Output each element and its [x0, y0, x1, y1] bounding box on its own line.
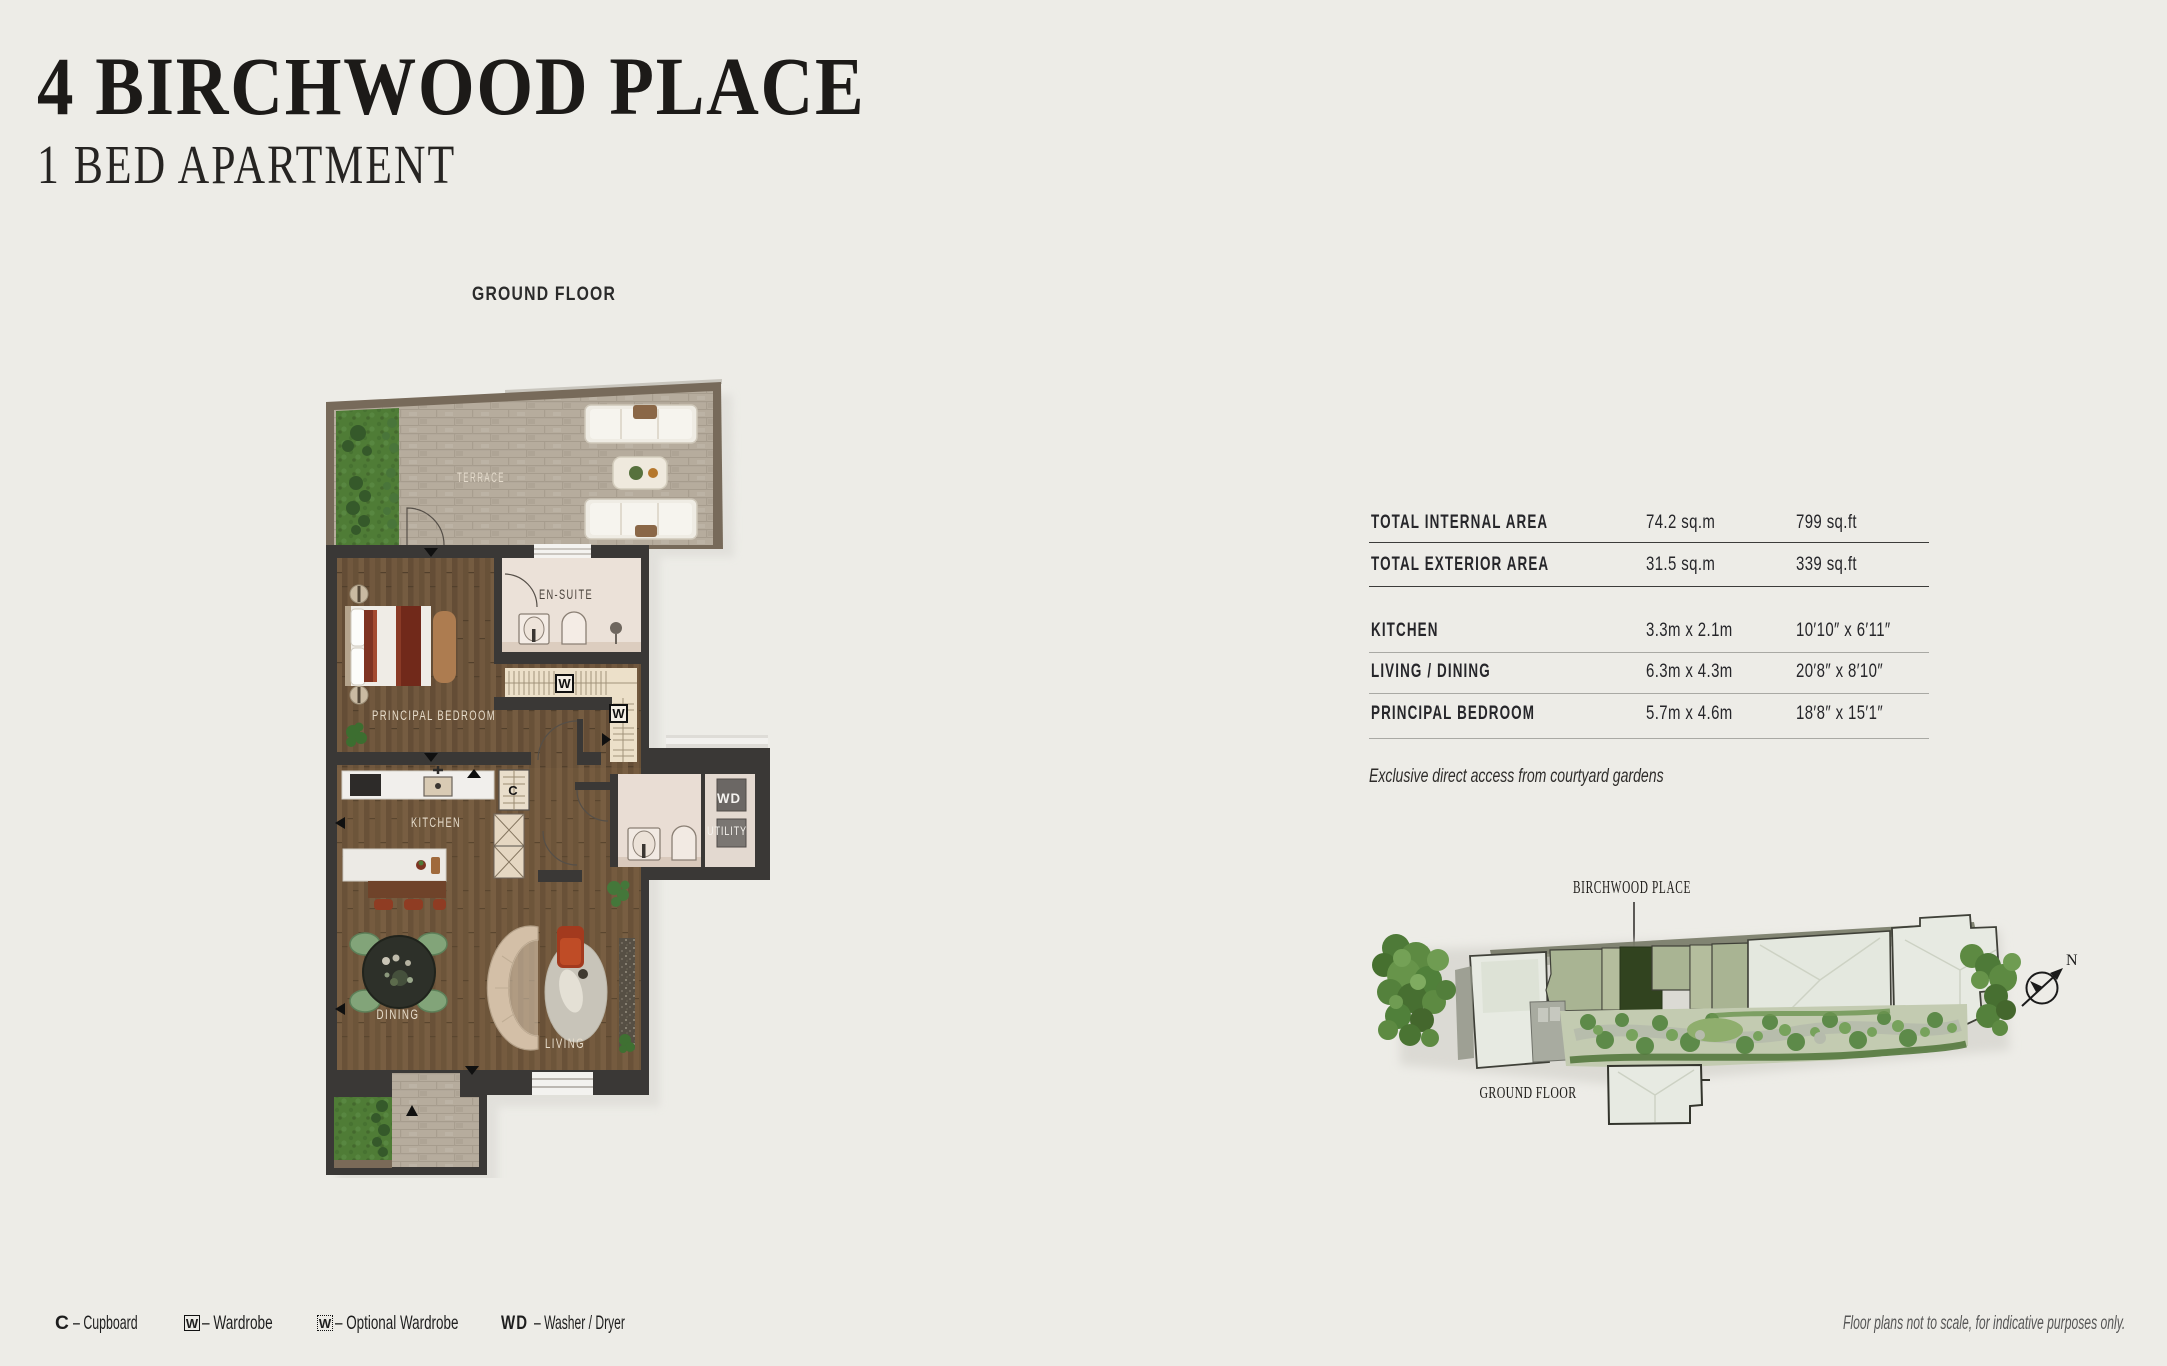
svg-text:DINING: DINING — [377, 1007, 420, 1022]
svg-text:KITCHEN: KITCHEN — [411, 815, 461, 830]
svg-text:C: C — [508, 783, 518, 798]
svg-text:GROUND FLOOR: GROUND FLOOR — [1480, 1083, 1577, 1102]
svg-text:BIRCHWOOD PLACE: BIRCHWOOD PLACE — [1573, 877, 1691, 897]
svg-text:PRINCIPAL BEDROOM: PRINCIPAL BEDROOM — [372, 708, 496, 723]
svg-text:UTILITY: UTILITY — [707, 826, 747, 838]
svg-text:W: W — [558, 676, 571, 691]
svg-text:W: W — [612, 706, 625, 721]
svg-text:EN-SUITE: EN-SUITE — [539, 587, 593, 602]
svg-text:N: N — [2066, 952, 2078, 969]
svg-text:TERRACE: TERRACE — [457, 470, 505, 485]
svg-text:WD: WD — [717, 790, 741, 806]
svg-text:LIVING: LIVING — [545, 1036, 585, 1051]
